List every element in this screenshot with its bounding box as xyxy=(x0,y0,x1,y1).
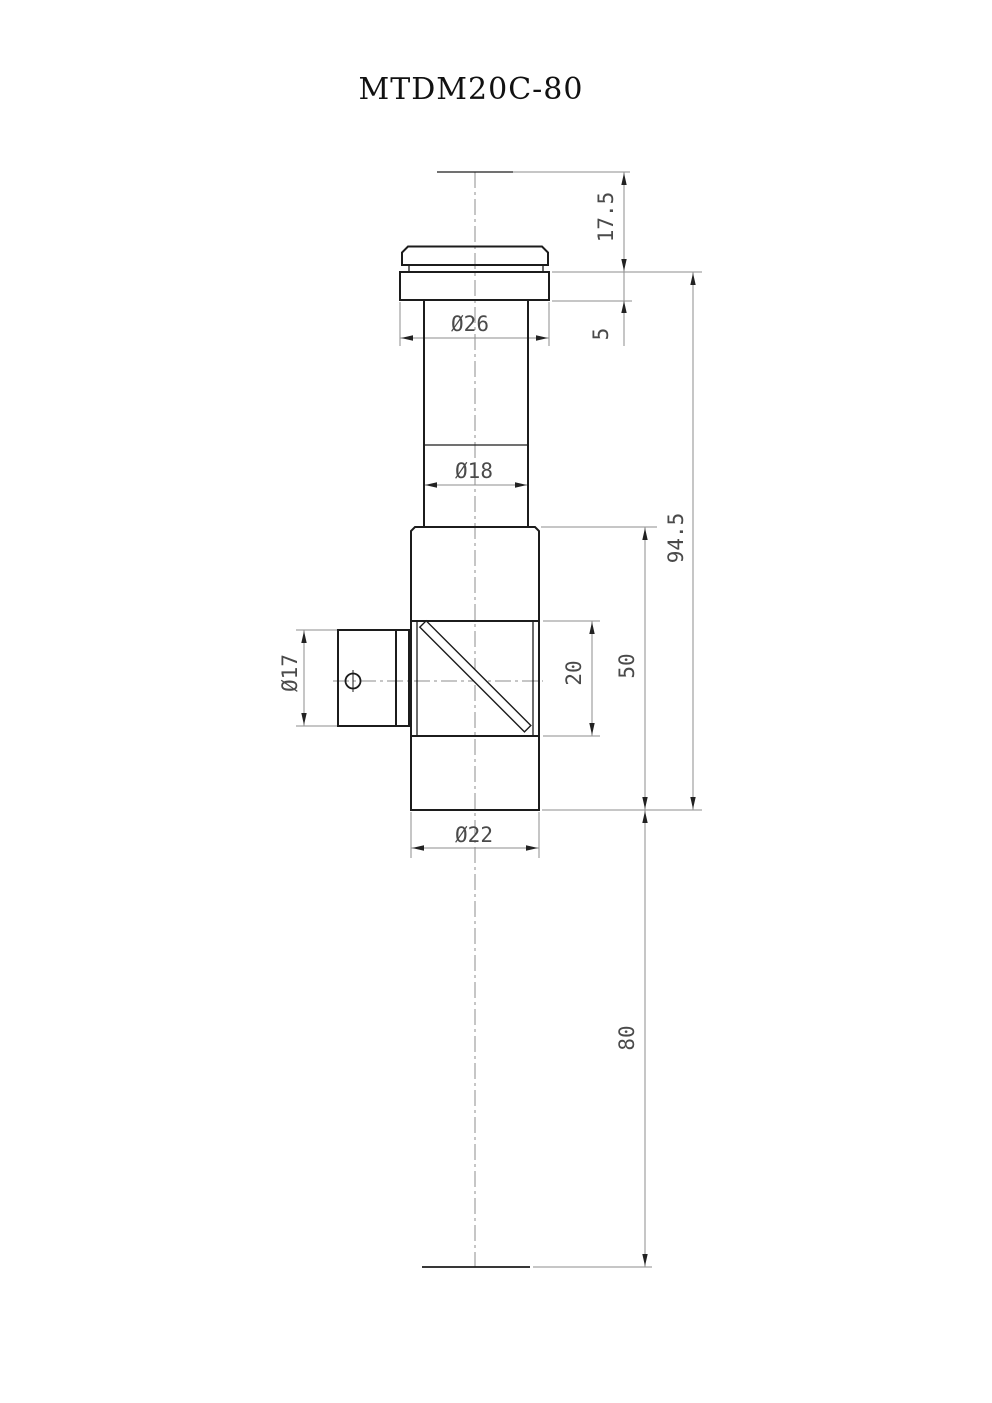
label-window-height: 20 xyxy=(562,660,586,685)
drawing-page: MTDM20C-80 xyxy=(0,0,992,1403)
label-bottom-extension: 80 xyxy=(615,1025,639,1050)
label-flange-diameter: Ø26 xyxy=(451,312,489,336)
arrow-20-top xyxy=(589,622,594,634)
arrow-50-bottom xyxy=(642,797,647,809)
dimension-arrows xyxy=(301,173,695,1266)
extension-lines xyxy=(296,172,702,1267)
label-top-offset: 17.5 xyxy=(594,192,618,243)
technical-drawing: MTDM20C-80 xyxy=(0,0,992,1403)
drawing-title: MTDM20C-80 xyxy=(359,72,584,107)
arrow-dia17-top xyxy=(301,631,306,643)
part-outline xyxy=(338,172,549,1267)
label-body-diameter: Ø22 xyxy=(455,823,493,847)
arrow-17-5-top xyxy=(621,173,626,185)
label-neck-diameter: Ø18 xyxy=(455,459,493,483)
arrow-dia17-bottom xyxy=(301,713,306,725)
arrow-dia26-right xyxy=(536,335,548,340)
label-body-length: 50 xyxy=(615,653,639,678)
arrow-dia22-left xyxy=(412,845,424,850)
cap-step xyxy=(409,265,543,272)
arrow-dia18-left xyxy=(425,482,437,487)
arrow-94-5-top xyxy=(690,273,695,285)
arrow-80-top xyxy=(642,811,647,823)
arrow-20-bottom xyxy=(589,723,594,735)
label-side-port-diameter: Ø17 xyxy=(278,654,302,692)
arrow-dia26-left xyxy=(401,335,413,340)
arrow-94-5-bottom xyxy=(690,797,695,809)
side-port xyxy=(338,630,409,726)
arrow-80-bottom xyxy=(642,1254,647,1266)
arrow-dia22-right xyxy=(526,845,538,850)
dimension-lines xyxy=(304,172,693,1267)
arrow-5-bottom xyxy=(621,301,626,313)
arrow-17-5-bottom xyxy=(621,259,626,271)
label-flange-thickness: 5 xyxy=(589,328,613,341)
arrow-50-top xyxy=(642,528,647,540)
arrow-dia18-right xyxy=(515,482,527,487)
label-overall-length: 94.5 xyxy=(664,513,688,564)
